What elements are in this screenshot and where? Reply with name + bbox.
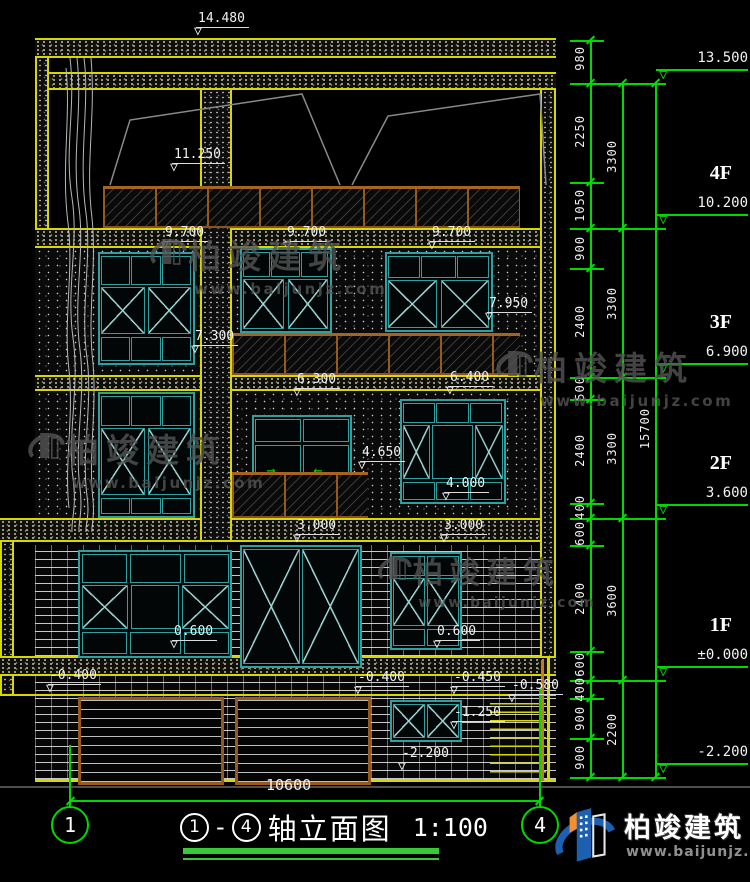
title-scale: 1:100 <box>413 813 488 842</box>
watermark: 柏竣建筑 www.baijunjz.com <box>26 424 265 492</box>
elevation-mark: 11.250▽ <box>172 148 225 164</box>
triangle-down-icon: ▽ <box>450 719 458 733</box>
axis-number: 1 <box>64 813 76 837</box>
elevation-mark: 4.000▽ <box>444 477 489 493</box>
dim-label: 600 <box>573 652 587 677</box>
window-pane <box>131 337 162 361</box>
door-leaf-x <box>243 549 300 663</box>
level-value: ±0.000 <box>697 647 748 663</box>
level-line <box>656 69 748 71</box>
window-sash-x <box>101 287 145 334</box>
window-1f-left <box>78 550 232 658</box>
triangle-down-icon: ▽ <box>170 638 178 652</box>
axis-bubble-1: 1 <box>51 806 89 844</box>
railing-3f <box>232 333 520 375</box>
elevation-mark: 7.950▽ <box>487 297 532 313</box>
watermark-url: www.baijunjz.com <box>194 280 387 298</box>
triangle-down-icon: ▽ <box>398 760 406 774</box>
triangle-down-icon: ▽ <box>358 459 366 473</box>
company-logo-url: www.baijunjz.com <box>626 844 750 860</box>
elevation-mark: -1.250▽ <box>452 706 505 722</box>
dim-label: 2400 <box>573 434 587 467</box>
window-pane <box>393 629 425 646</box>
level-value: 10.200 <box>697 195 748 211</box>
triangle-down-icon: ▽ <box>450 684 458 698</box>
elevation-mark: -0.450▽ <box>452 671 505 687</box>
watermark-url: www.baijunjz.com <box>540 392 733 410</box>
watermark: 柏竣建筑 www.baijunjz.com <box>494 342 733 410</box>
company-logo-brand: 柏竣建筑 <box>624 806 744 845</box>
dim-label: 1050 <box>573 189 587 222</box>
width-dim-label: 10600 <box>266 776 311 794</box>
title-name: 轴立面图 <box>268 806 392 848</box>
level-line <box>656 666 748 668</box>
window-pane <box>457 256 489 278</box>
level-value: -2.200 <box>697 744 748 760</box>
triangle-down-icon: ▽ <box>46 682 54 696</box>
triangle-down-icon: ▽ <box>293 386 301 400</box>
garage-door-left <box>78 697 224 785</box>
window-pane <box>101 256 130 284</box>
dim-chain-line-2 <box>622 83 624 777</box>
elevation-mark: 6.300▽ <box>295 373 340 389</box>
drawing-title: 1 - 4 轴立面图 1:100 <box>180 806 488 848</box>
triangle-down-icon: ▽ <box>440 532 448 546</box>
elevation-mark: -0.400▽ <box>48 669 101 685</box>
ground-line-minus040 <box>0 694 556 696</box>
window-pane <box>403 403 435 423</box>
window-sash-x <box>82 585 129 629</box>
triangle-down-icon: ▽ <box>428 239 436 253</box>
floor-label: 3F <box>710 311 732 334</box>
window-sash-x <box>475 425 503 479</box>
elevation-mark: -2.200▽ <box>400 747 453 763</box>
window-pane <box>130 554 181 583</box>
elevation-mark: 14.480▽ <box>196 12 249 28</box>
watermark-logo-icon <box>376 549 413 591</box>
triangle-down-icon: ▽ <box>170 161 178 175</box>
elevation-mark: 7.300▽ <box>193 330 238 346</box>
elevation-mark: 3.000▽ <box>442 519 487 535</box>
window-pane <box>101 396 130 425</box>
level-line <box>656 504 748 506</box>
title-underline-thin <box>183 858 439 860</box>
title-axis-circle-a: 1 <box>180 813 209 842</box>
watermark-logo-icon <box>26 425 66 471</box>
watermark-logo-icon <box>494 343 534 389</box>
dim-label: 980 <box>573 46 587 71</box>
watermark-url: www.baijunjz.com <box>418 594 596 611</box>
elevation-mark: 6.400▽ <box>448 371 493 387</box>
door-leaf-x <box>302 549 359 663</box>
triangle-down-icon: ▽ <box>293 532 301 546</box>
window-pane <box>162 396 191 425</box>
window-pane <box>101 498 130 514</box>
window-sash-x <box>403 425 430 479</box>
watermark: 柏竣建筑 www.baijunjz.com <box>376 548 596 611</box>
elevation-mark: -0.400▽ <box>356 671 409 687</box>
roof-parapet-slab <box>35 38 556 58</box>
level-line <box>656 214 748 216</box>
window-pane <box>131 396 162 425</box>
watermark-brand: 柏竣建筑 <box>413 548 560 592</box>
dim-label: 400 <box>573 495 587 520</box>
stair-rail-post <box>547 656 550 781</box>
dim-label: 3600 <box>605 584 619 617</box>
window-pane <box>403 482 435 500</box>
dim-chain-line-3 <box>655 83 657 777</box>
dim-label: 900 <box>573 706 587 731</box>
axis-number: 4 <box>241 817 252 837</box>
level-value: 3.600 <box>706 485 748 501</box>
window-pane <box>162 337 191 361</box>
window-pane <box>436 403 470 423</box>
window-pane <box>82 554 127 583</box>
triangle-down-icon: ▽ <box>442 490 450 504</box>
watermark-brand: 柏竣建筑 <box>66 424 226 472</box>
window-pane <box>388 256 420 278</box>
triangle-down-icon: ▽ <box>485 310 493 324</box>
watermark-brand: 柏竣建筑 <box>188 230 348 278</box>
level-value: 13.500 <box>697 50 748 66</box>
title-underline-thick <box>183 848 439 854</box>
elevation-mark: 9.700▽ <box>430 226 475 242</box>
window-pane <box>131 585 179 629</box>
triangle-down-icon: ▽ <box>191 343 199 357</box>
company-logo: 柏竣建筑 www.baijunjz.com <box>552 798 750 880</box>
title-axis-circle-b: 4 <box>232 813 261 842</box>
floor-label: 1F <box>710 614 732 637</box>
title-dash: - <box>216 813 225 841</box>
dim-label: 400 <box>573 677 587 702</box>
cad-elevation-drawing: → ← <box>0 0 750 882</box>
window-sash-x <box>393 704 425 739</box>
dim-label: 2400 <box>573 305 587 338</box>
entry-door-1f <box>240 545 362 668</box>
roof-silhouette-lines <box>100 88 556 188</box>
elevation-mark: 0.600▽ <box>172 625 217 641</box>
elevation-mark: -0.580▽ <box>510 679 563 695</box>
triangle-down-icon: ▽ <box>354 684 362 698</box>
window-pane <box>82 632 127 654</box>
window-sash-x <box>182 585 229 629</box>
triangle-down-icon: ▽ <box>446 384 454 398</box>
window-pane <box>101 337 130 361</box>
ground-line <box>0 786 750 788</box>
window-pane <box>432 425 474 479</box>
window-3f-right <box>385 252 493 332</box>
axis-line-4 <box>539 688 541 807</box>
dim-label: 3300 <box>605 287 619 320</box>
elevation-mark: 4.650▽ <box>360 446 405 462</box>
elevation-mark: 0.600▽ <box>435 625 480 641</box>
dim-label: 15700 <box>638 408 652 449</box>
watermark-logo-icon <box>148 231 188 277</box>
axis-number: 4 <box>534 813 546 837</box>
triangle-down-icon: ▽ <box>433 638 441 652</box>
triangle-down-icon: ▽ <box>194 25 202 39</box>
window-pane <box>162 498 191 514</box>
watermark-brand: 柏竣建筑 <box>534 342 694 390</box>
floor-label: 4F <box>710 162 732 185</box>
garage-door-right <box>235 697 371 785</box>
dim-label: 2250 <box>573 115 587 148</box>
railing-4f <box>103 186 520 228</box>
company-logo-icon <box>552 802 618 874</box>
dim-label: 2200 <box>605 713 619 746</box>
window-sash-x <box>441 280 489 329</box>
dim-label: 900 <box>573 745 587 770</box>
door-transom <box>303 419 349 442</box>
triangle-down-icon: ▽ <box>508 692 516 706</box>
dim-label: 600 <box>573 521 587 546</box>
dim-label: 3300 <box>605 140 619 173</box>
width-dim-line <box>70 800 540 802</box>
window-sash-x <box>388 280 437 329</box>
window-pane <box>131 498 162 514</box>
floor-label: 2F <box>710 452 732 475</box>
watermark: 柏竣建筑 www.baijunjz.com <box>148 230 387 298</box>
window-pane <box>421 256 455 278</box>
column-left-outer <box>35 58 49 228</box>
watermark-url: www.baijunjz.com <box>72 474 265 492</box>
dim-label: 900 <box>573 236 587 261</box>
elevation-mark: 3.000▽ <box>295 519 340 535</box>
dim-label: 3300 <box>605 432 619 465</box>
level-line <box>656 763 748 765</box>
axis-number: 1 <box>189 817 200 837</box>
window-pane <box>184 554 229 583</box>
